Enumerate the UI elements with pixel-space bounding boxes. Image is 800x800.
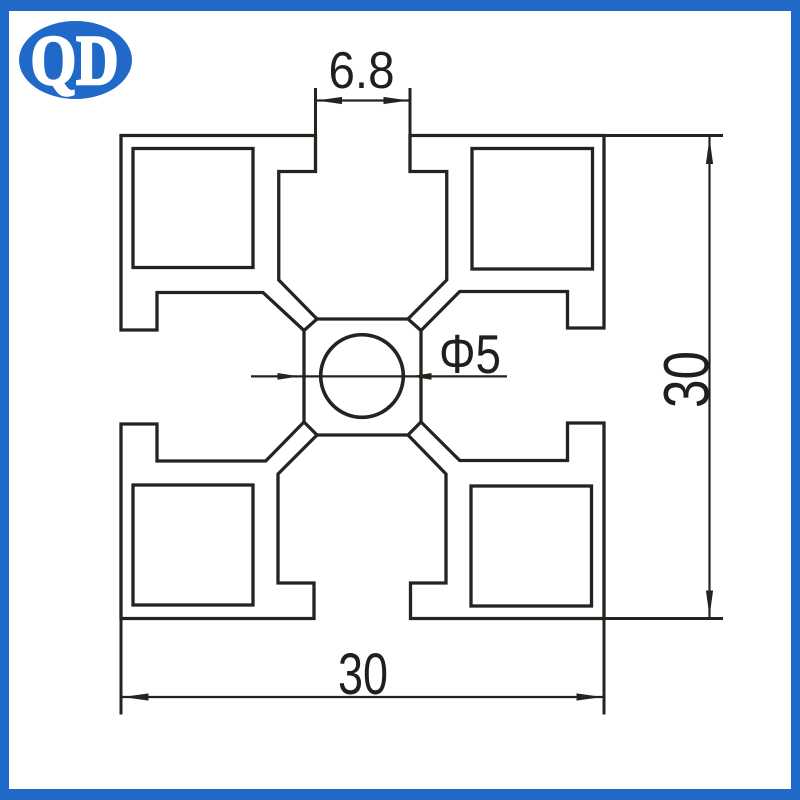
svg-text:30: 30 [338,642,388,707]
svg-text:QD: QD [31,22,119,101]
svg-text:6.8: 6.8 [329,42,395,100]
svg-text:30: 30 [650,351,722,408]
svg-text:Φ5: Φ5 [439,323,501,385]
